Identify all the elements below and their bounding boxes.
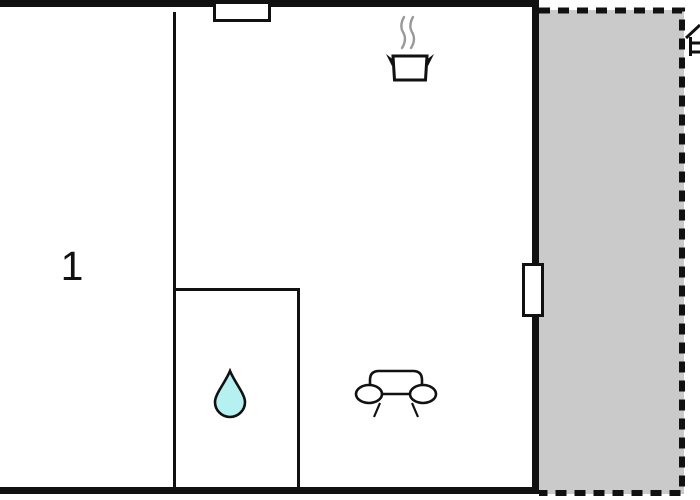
water-drop-icon: [211, 368, 249, 420]
door-symbol: [522, 263, 544, 317]
room-label: 1: [48, 243, 96, 289]
sofa-icon: [352, 364, 440, 420]
floor-plan: 1: [0, 0, 700, 500]
window-symbol: [213, 1, 271, 22]
steam-icon: [401, 17, 414, 48]
exterior-wall-right: [532, 0, 539, 487]
cooking-pot-icon: [383, 12, 437, 84]
interior-wall-divider: [173, 12, 176, 487]
bathroom-wall-top: [176, 288, 300, 291]
partial-house-icon: [685, 23, 700, 57]
bathroom-wall-right: [297, 288, 300, 487]
terrace-area: [538, 10, 684, 494]
exterior-wall-bottom: [0, 487, 539, 494]
